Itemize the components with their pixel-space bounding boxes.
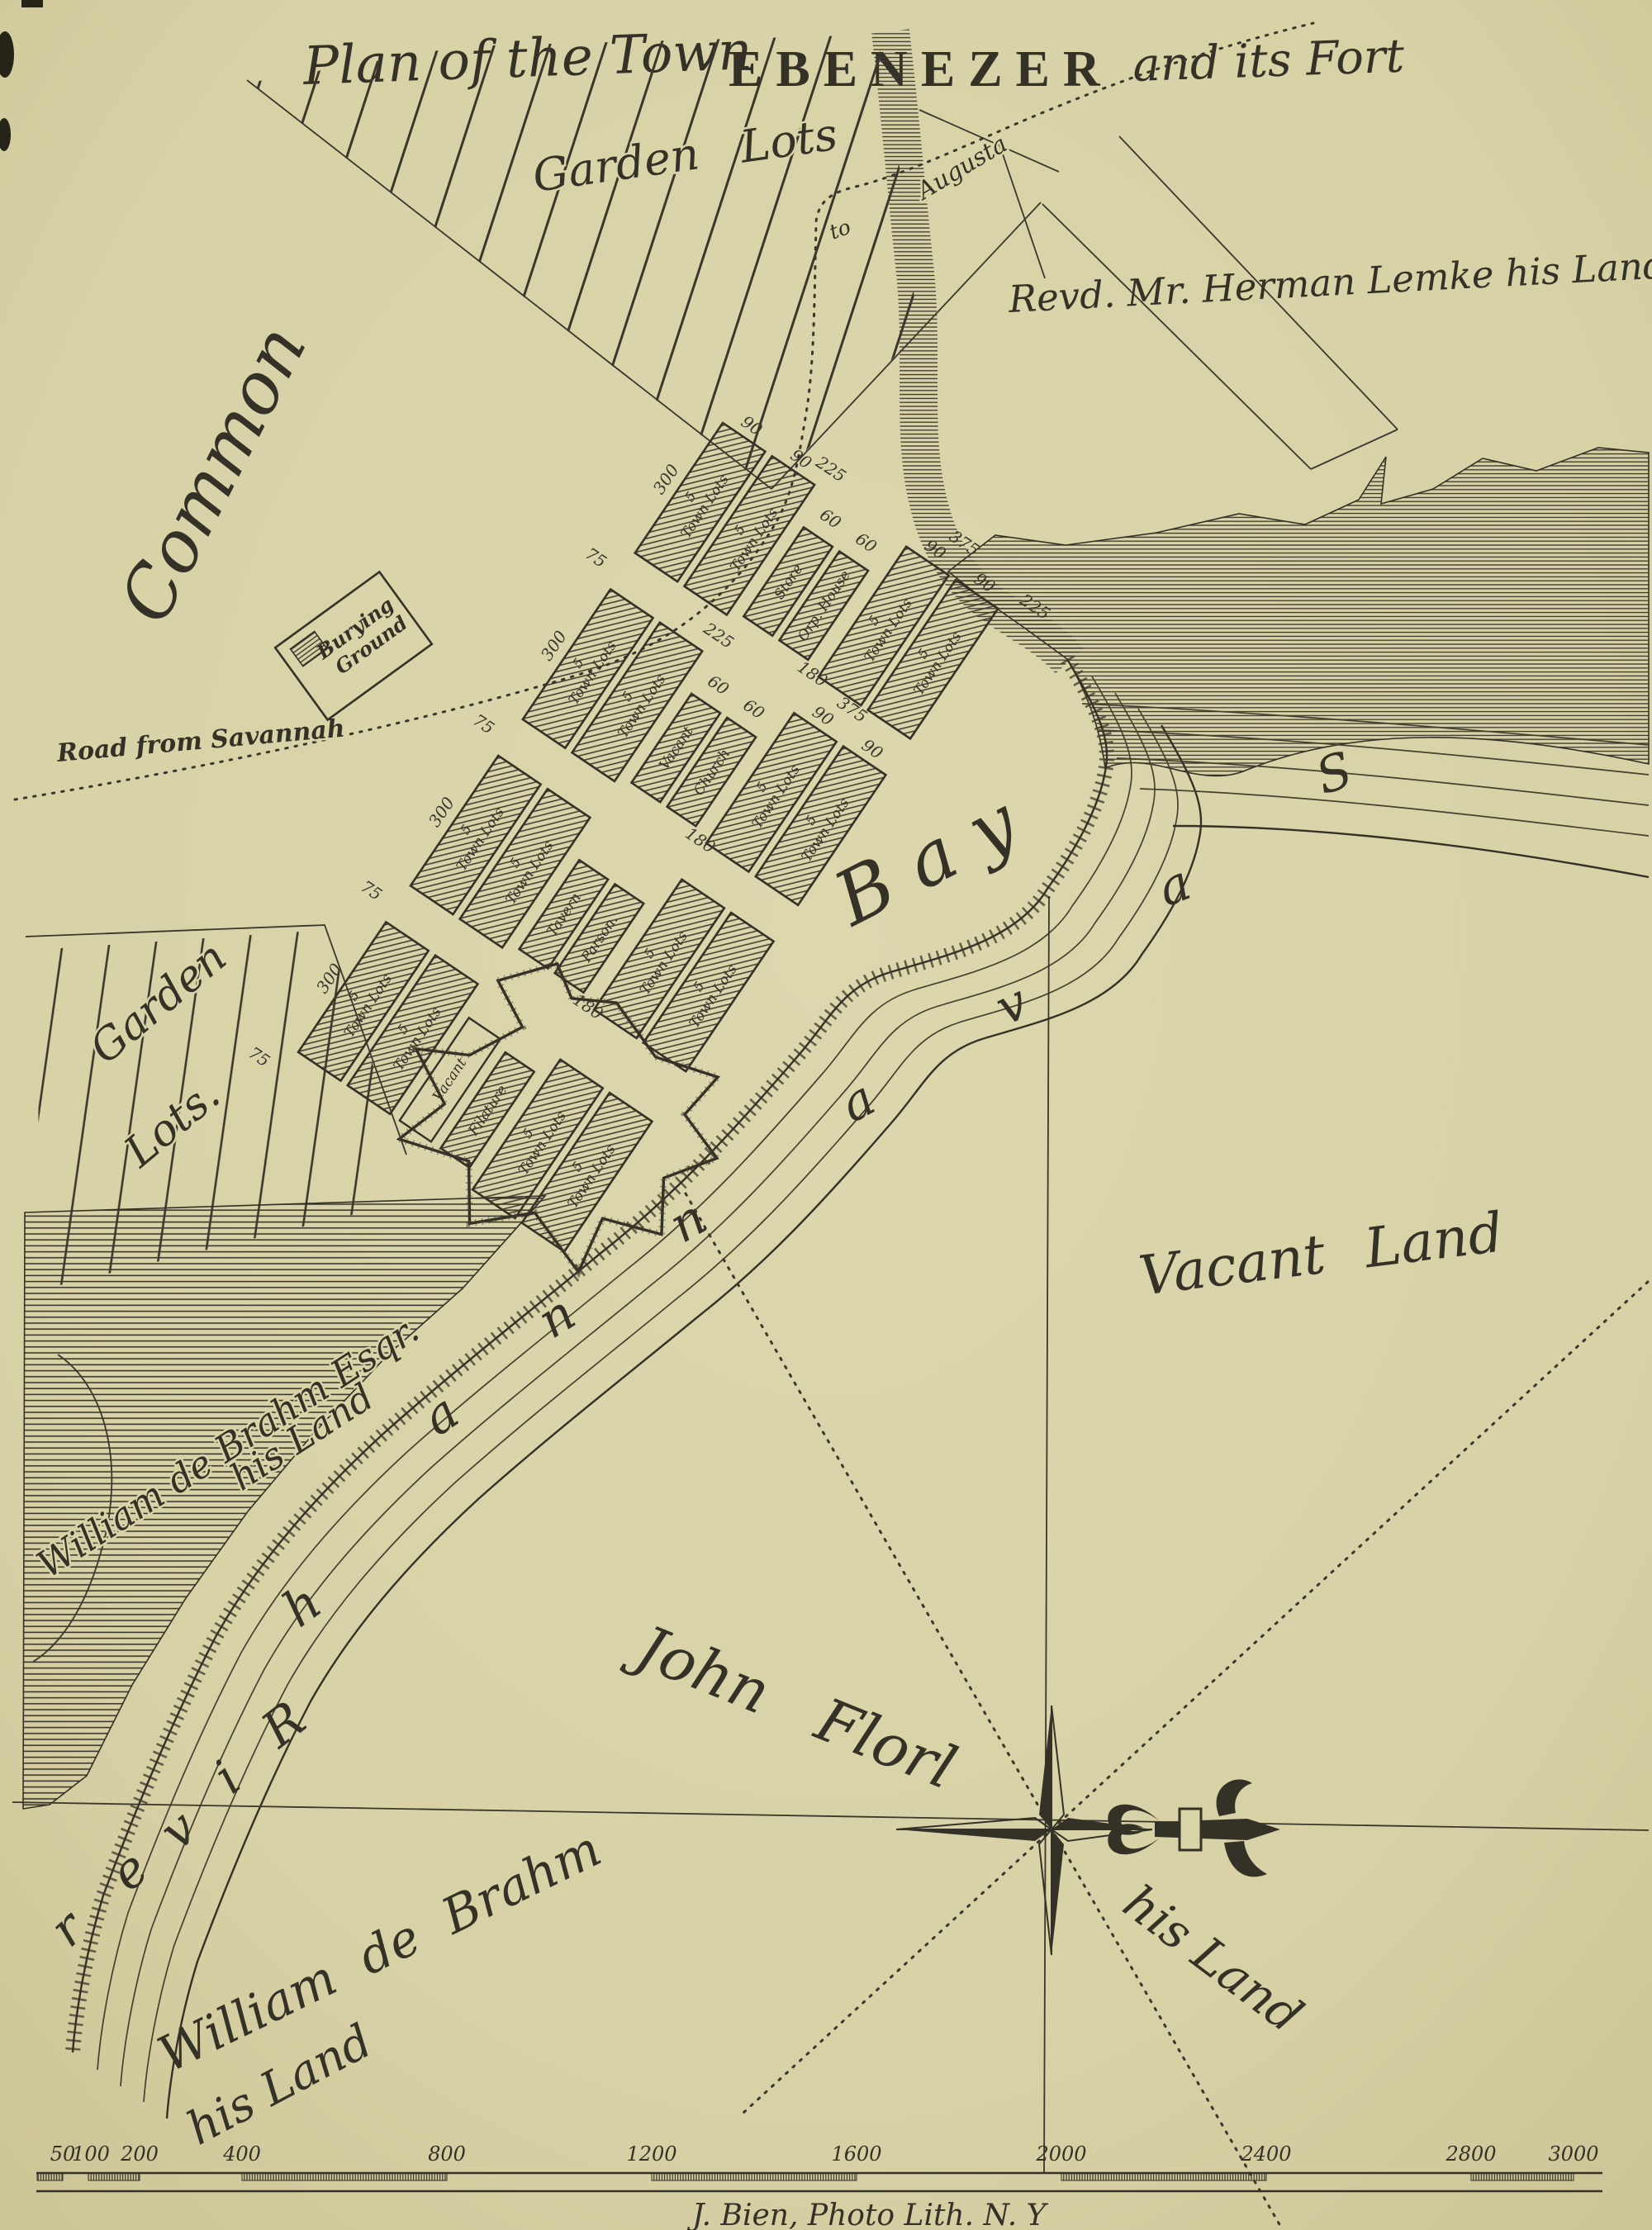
scale-segment [242, 2173, 447, 2180]
scale-tick: 1200 [626, 2142, 676, 2166]
scale-segment [652, 2173, 857, 2180]
lithographer-imprint: J. Bien, Photo Lith. N. Y [686, 2199, 1049, 2230]
scale-tick: 400 [222, 2142, 261, 2166]
ebenezer-map: Plan of the Town EBENEZER and its Fort G… [0, 0, 1652, 2230]
scale-tick: 2400 [1240, 2142, 1291, 2166]
scale-tick: 100 [72, 2142, 110, 2166]
title-suffix: and its Fort [1132, 30, 1405, 93]
scale-segment [37, 2173, 63, 2180]
ebenezer-map-page: Plan of the Town EBENEZER and its Fort G… [0, 0, 1652, 2230]
scale-tick: 2000 [1035, 2142, 1086, 2166]
scale-segment [1061, 2173, 1266, 2180]
scale-tick: 3000 [1548, 2142, 1598, 2166]
scale-segment [88, 2173, 140, 2180]
scale-segment [1471, 2173, 1574, 2180]
scale-tick: 1600 [831, 2142, 881, 2166]
scale-tick: 2800 [1445, 2142, 1496, 2166]
edge-blemish [21, 0, 43, 7]
scale-tick: 800 [428, 2142, 466, 2166]
scale-tick: 200 [120, 2142, 159, 2166]
